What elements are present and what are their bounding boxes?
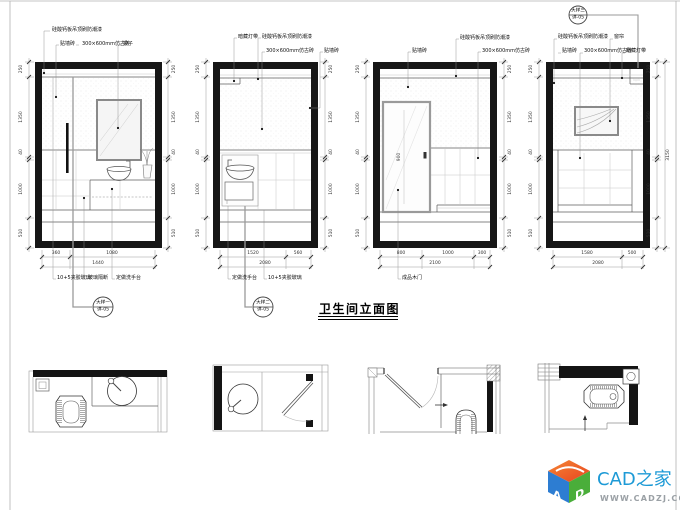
dim-label: 40 [197, 149, 202, 155]
cadzj-brand-text: CAD之家 [597, 470, 672, 490]
plan-bathtub [584, 385, 624, 408]
dim-label: 1000 [197, 183, 202, 194]
detail-ref-label: 大样一 [96, 301, 110, 306]
dim-label: 2080 [592, 262, 603, 267]
dim-label: 2080 [259, 262, 270, 267]
dim-label: 3150 [667, 149, 672, 160]
dim-label: 1000 [648, 183, 653, 194]
plan-toilet-3 [456, 410, 476, 434]
plan-floor-drain [36, 379, 49, 391]
dim-label: 250 [509, 65, 514, 74]
elevation-3 [361, 39, 508, 279]
dim-label: 360 [52, 252, 61, 257]
annotation-label: 贴墙砖 [60, 42, 75, 47]
dim-label: 1440 [92, 262, 103, 267]
dim-label: 1000 [509, 183, 514, 194]
annotation-label: 10+5夹胶玻璃 [268, 276, 302, 281]
dim-label: 1000 [20, 183, 25, 194]
vanity-side [222, 155, 258, 206]
dim-label: 40 [509, 149, 514, 155]
plan-view-4 [538, 363, 639, 433]
dim-label: 1000 [357, 183, 362, 194]
plan-door-swing-3 [385, 374, 438, 408]
plan-corner-fixture [623, 369, 639, 384]
dim-label: 510 [197, 229, 202, 238]
plan-arrow-right [435, 403, 448, 407]
annotation-label: 成品木门 [402, 276, 422, 281]
annotation-label: 暗藏灯带 [626, 49, 646, 54]
dim-label: 40 [648, 149, 653, 155]
annotation-label: 硅酸钙板吊顶刷防潮漆 [558, 35, 608, 40]
annotation-label: 玻璃隔断 [88, 276, 108, 281]
annotation-label: 窗帘 [614, 35, 624, 40]
dim-label: 250 [173, 65, 178, 74]
dim-label: 510 [357, 229, 362, 238]
detail-ref-label: 详-05 [257, 308, 269, 313]
dim-label: 1000 [173, 183, 178, 194]
towel-bar [66, 123, 69, 173]
dim-label: 510 [648, 229, 653, 238]
cadzj-logo-cube: A D [548, 460, 590, 504]
dim-label: 510 [330, 229, 335, 238]
dim-label: 250 [330, 65, 335, 74]
mirror [97, 100, 141, 160]
dim-label: 1000 [330, 183, 335, 194]
title-underline-thin [318, 319, 398, 320]
dim-label: 510 [173, 229, 178, 238]
cadzj-url-text: WWW.CADZJ.COM [600, 494, 680, 503]
dim-label: 900 [398, 153, 403, 162]
detail-ref-label: 详-05 [572, 16, 584, 21]
dim-label: 250 [530, 65, 535, 74]
dim-label: 250 [648, 65, 653, 74]
annotation-label: 贴墙砖 [562, 49, 577, 54]
dim-label: 40 [20, 149, 25, 155]
plan-view-1 [29, 370, 167, 432]
dim-label: 1580 [581, 252, 592, 257]
dim-label: 40 [330, 149, 335, 155]
annotation-label: 贴墙砖 [324, 49, 339, 54]
dim-label: 500 [628, 252, 637, 257]
annotation-label: 300×600mm仿古砖 [266, 49, 314, 54]
annotation-label: 定做洗手台 [116, 276, 141, 281]
annotation-label: 硅酸钙板吊顶刷防潮漆 [52, 28, 102, 33]
plan-view-3 [368, 365, 500, 434]
window-with-curtain [575, 107, 618, 135]
annotation-label: 定做洗手台 [232, 276, 257, 281]
vessel-sink [107, 161, 131, 181]
annotation-label: 硅酸钙板吊顶刷防潮漆 [262, 35, 312, 40]
dim-label: 1350 [197, 111, 202, 122]
plan-basin-1 [108, 377, 137, 406]
dim-label: 1350 [20, 111, 25, 122]
elevation-2 [201, 38, 329, 317]
dim-label: 2100 [429, 262, 440, 267]
detail-ref-label: 大样二 [256, 301, 270, 306]
drawing-linework: A D [0, 0, 680, 510]
dim-label: 1000 [530, 183, 535, 194]
dim-label: 1350 [509, 111, 514, 122]
annotation-label: 10+5夹胶玻璃 [57, 276, 91, 281]
dim-label: 800 [397, 252, 406, 257]
drawing-title: 卫生间立面图 [319, 300, 400, 317]
dim-label: 1350 [648, 111, 653, 122]
detail-ref-label: 大样三 [571, 9, 585, 14]
dim-label: 1350 [330, 111, 335, 122]
plan-arrow-up [583, 415, 587, 431]
annotation-label: 贴墙砖 [412, 49, 427, 54]
annotation-label: 镜子 [123, 42, 133, 47]
plan-view-2 [213, 365, 328, 431]
dim-label: 250 [197, 65, 202, 74]
annotation-label: 300×600mm仿古砖 [584, 49, 632, 54]
dim-label: 40 [173, 149, 178, 155]
dim-label: 1520 [247, 252, 258, 257]
cad-sheet: A D 卫生间立面图 硅酸钙板吊顶刷防潮漆 贴墙砖 300×600mm仿古砖 镜… [0, 0, 680, 510]
dim-label: 510 [20, 229, 25, 238]
annotation-label: 硅酸钙板吊顶刷防潮漆 [460, 36, 510, 41]
plan-basin-2 [228, 384, 258, 414]
dim-label: 300 [478, 252, 487, 257]
detail-ref-label: 详-05 [97, 308, 109, 313]
dim-label: 510 [509, 229, 514, 238]
dim-label: 1350 [357, 111, 362, 122]
dim-label: 1350 [173, 111, 178, 122]
dim-label: 40 [530, 149, 535, 155]
plan-toilet [56, 396, 86, 427]
dim-label: 510 [530, 229, 535, 238]
dim-label: 1000 [442, 252, 453, 257]
dim-label: 40 [357, 149, 362, 155]
annotation-label: 300×600mm仿古砖 [482, 49, 530, 54]
dim-label: 250 [357, 65, 362, 74]
door [383, 102, 430, 212]
title-underline-thick [318, 316, 398, 317]
door-handle [424, 152, 427, 159]
dim-label: 560 [294, 252, 303, 257]
dim-label: 1080 [106, 252, 117, 257]
dim-label: 250 [20, 65, 25, 74]
annotation-label: 暗藏灯带 [238, 35, 258, 40]
dim-label: 1350 [530, 111, 535, 122]
